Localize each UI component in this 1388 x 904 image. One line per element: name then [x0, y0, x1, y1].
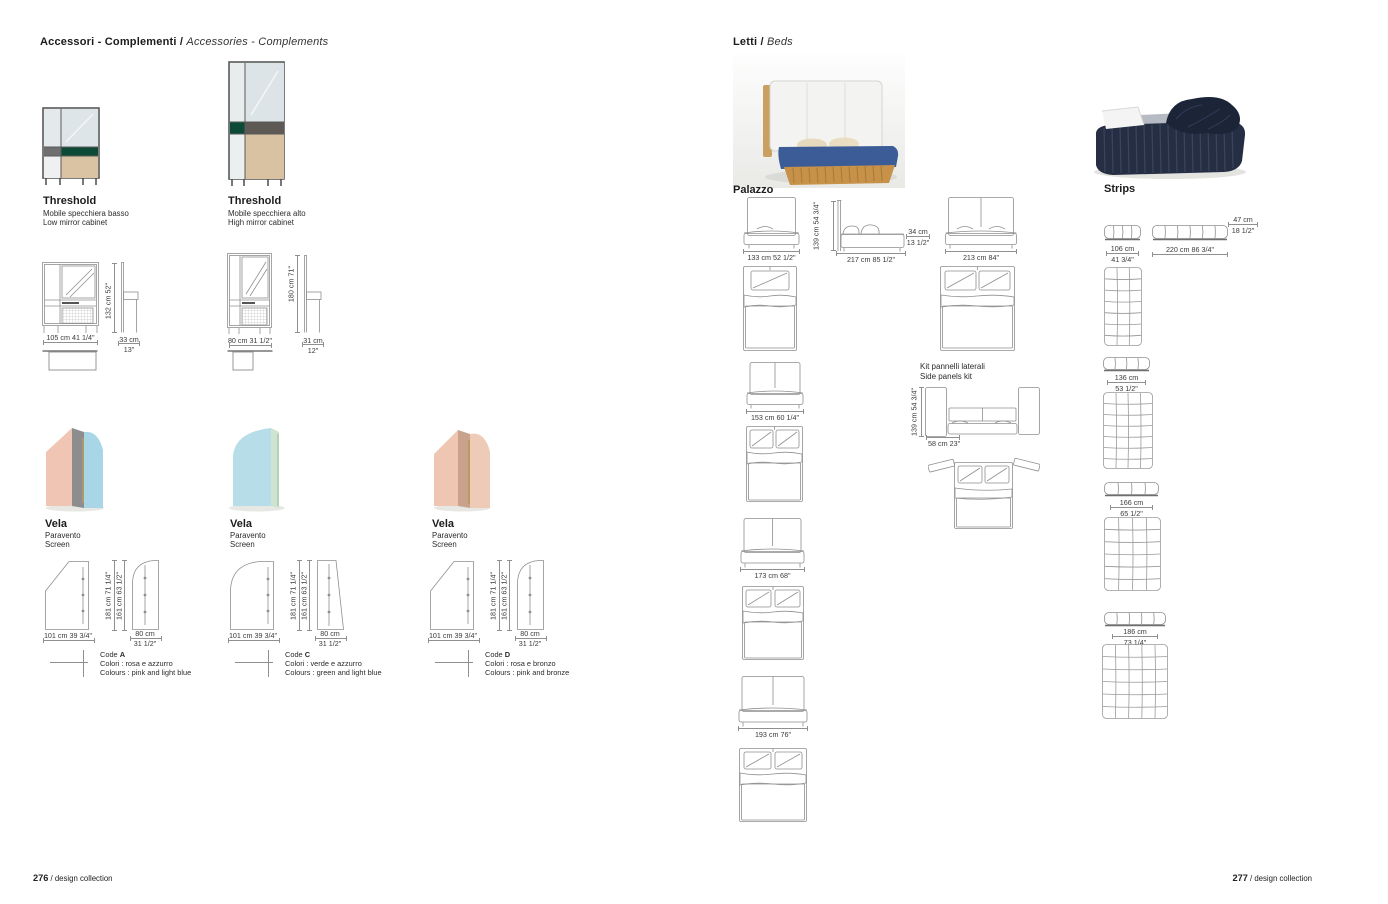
kit-title-en: Side panels kit [920, 372, 972, 381]
vela-c-photo [227, 418, 291, 513]
strips-plan-136 [1103, 392, 1153, 469]
vela-c-code: C [305, 650, 310, 659]
left-footer-label: / design collection [51, 874, 113, 883]
kit-width-dim: 58 cm 23" [928, 439, 960, 448]
palazzo-front-173 [740, 518, 805, 568]
vela-d-h1-dim: 181 cm 71 1/4" [489, 572, 498, 620]
palazzo-side-drawing [836, 200, 906, 252]
threshold-high-photo [228, 61, 285, 187]
vela-c-front-drawing [230, 561, 275, 630]
strips-front-186 [1104, 611, 1166, 628]
kit-front-drawing [925, 386, 1040, 438]
strips-w166-dimline [1110, 507, 1153, 508]
threshold-low-side-drawing [120, 262, 139, 333]
palazzo-top-193 [739, 748, 807, 822]
threshold-low-photo [42, 107, 100, 186]
threshold-high-top-drawing [227, 349, 273, 372]
vela-group-d: Vela Paravento Screen 101 cm 39 3/4" 181… [425, 410, 610, 690]
vela-d-code-line: Code D [485, 650, 569, 659]
vela-c-desc-en: Screen [230, 540, 255, 549]
strips-w106-dimline [1106, 253, 1139, 254]
vela-d-desc-it: Paravento [432, 531, 468, 540]
vela-c-width-dimline [228, 640, 280, 641]
vela-a-desc-it: Paravento [45, 531, 81, 540]
kit-title-it: Kit pannelli laterali [920, 362, 985, 371]
vela-d-front-drawing [430, 561, 475, 630]
palazzo-front-193 [738, 676, 808, 727]
left-page-footer: 276 / design collection [33, 873, 113, 883]
vela-a-h1-dim: 181 cm 71 1/4" [104, 572, 113, 620]
vela-d-w2-in: 31 1/2" [509, 639, 551, 648]
palazzo-217-dim: 217 cm 85 1/2" [836, 255, 906, 264]
threshold-high-width-dimline [229, 345, 272, 346]
vela-a-desc-en: Screen [45, 540, 70, 549]
strips-name: Strips [1104, 183, 1135, 195]
threshold-high-height-dimline [297, 255, 298, 333]
vela-d-desc-en: Screen [432, 540, 457, 549]
palazzo-name: Palazzo [733, 184, 773, 196]
palazzo-153-dim: 153 cm 60 1/4" [746, 413, 804, 422]
palazzo-133-dim: 133 cm 52 1/2" [743, 253, 800, 262]
palazzo-base-h-dimline [906, 236, 930, 237]
vela-a-w2-in: 31 1/2" [124, 639, 166, 648]
palazzo-213-dim: 213 cm 84" [945, 253, 1017, 262]
vela-d-colori: Colori : rosa e bronzo [485, 659, 569, 668]
vela-c-h2-dimline [309, 560, 310, 631]
vela-d-plan-vline [468, 650, 469, 677]
vela-d-h2-dim: 161 cm 63 1/2" [500, 572, 509, 620]
vela-d-width-dimline [428, 640, 480, 641]
vela-c-h2-dim: 161 cm 63 1/2" [300, 572, 309, 620]
vela-a-front-drawing [45, 561, 90, 630]
left-page-title: Accessori - Complementi / Accessories - … [40, 36, 328, 48]
right-page-footer: 277 / design collection [1130, 873, 1312, 883]
vela-c-colori: Colori : verde e azzurro [285, 659, 382, 668]
palazzo-213-dimline [945, 251, 1017, 252]
vela-c-plan-vline [268, 650, 269, 677]
threshold-low-top-drawing [42, 349, 98, 372]
vela-c-side-drawing [317, 560, 345, 630]
strips-w186-dimline [1112, 636, 1158, 637]
strips-l220-dim: 220 cm 86 3/4" [1152, 245, 1228, 254]
threshold-high-depth-in: 12" [301, 346, 325, 355]
strips-w106-in: 41 3/4" [1098, 255, 1147, 264]
strips-front-220 [1152, 223, 1228, 242]
left-title-italian: Accessori - Complementi / [40, 36, 183, 48]
palazzo-153-dimline [746, 411, 804, 412]
right-title-english: Beds [767, 36, 793, 48]
palazzo-193-dim: 193 cm 76" [738, 730, 808, 739]
strips-plan-106 [1104, 267, 1142, 346]
palazzo-top-133 [743, 266, 797, 351]
palazzo-193-dimline [738, 728, 808, 729]
palazzo-front-153 [746, 362, 804, 409]
threshold-high-height-dim: 180 cm 71" [287, 266, 296, 302]
strips-plan-166 [1104, 517, 1161, 591]
vela-d-code-block: Code D Colori : rosa e bronzo Colours : … [485, 650, 569, 678]
threshold-low-desc-en: Low mirror cabinet [43, 218, 107, 227]
palazzo-133-dimline [743, 251, 800, 252]
right-page-number: 277 [1233, 873, 1248, 883]
threshold-low-desc-it: Mobile specchiera basso [43, 209, 129, 218]
palazzo-173-dim: 173 cm 68" [740, 571, 805, 580]
strips-h47-in: 18 1/2" [1222, 226, 1264, 235]
right-title-italian: Letti / [733, 36, 764, 48]
palazzo-front-213 [945, 197, 1017, 249]
vela-a-h2-dim: 161 cm 63 1/2" [115, 572, 124, 620]
threshold-low-width-dimline [43, 342, 98, 343]
vela-a-code-line: Code A [100, 650, 191, 659]
vela-c-h1-dim: 181 cm 71 1/4" [289, 572, 298, 620]
palazzo-height-dimline [833, 201, 834, 251]
left-page-number: 276 [33, 873, 48, 883]
threshold-low-width-dim: 105 cm 41 1/4" [42, 333, 99, 342]
vela-d-code: D [505, 650, 510, 659]
threshold-low-height-dim: 132 cm 52" [104, 283, 113, 319]
strips-w166-cm: 166 cm [1104, 498, 1159, 507]
strips-front-166 [1104, 481, 1159, 498]
catalog-spread: Accessori - Complementi / Accessories - … [0, 0, 1388, 904]
vela-c-desc-it: Paravento [230, 531, 266, 540]
vela-a-h2-dimline [124, 560, 125, 631]
palazzo-photo [733, 55, 905, 188]
vela-a-width-dimline [43, 640, 95, 641]
vela-d-photo [430, 418, 494, 513]
vela-a-name: Vela [45, 518, 67, 530]
strips-photo [1078, 83, 1258, 184]
vela-c-name: Vela [230, 518, 252, 530]
strips-l220-dimline [1152, 254, 1228, 255]
vela-d-side-drawing [517, 560, 545, 630]
threshold-high-desc-en: High mirror cabinet [228, 218, 294, 227]
vela-c-colours: Colours : green and light blue [285, 668, 382, 677]
right-footer-label: / design collection [1250, 874, 1312, 883]
threshold-high-name: Threshold [228, 195, 281, 207]
palazzo-base-h-in: 13 1/2" [902, 238, 934, 247]
vela-a-code-block: Code A Colori : rosa e azzurro Colours :… [100, 650, 191, 678]
vela-a-side-drawing [132, 560, 160, 630]
threshold-high-side-drawing [303, 255, 323, 333]
strips-w136-dimline [1107, 382, 1146, 383]
vela-group-c: Vela Paravento Screen 101 cm 39 3/4" 181… [225, 410, 410, 690]
vela-d-name: Vela [432, 518, 454, 530]
palazzo-top-153 [746, 426, 803, 502]
kit-height-dim: 139 cm 54 3/4" [910, 388, 919, 436]
palazzo-173-dimline [740, 569, 805, 570]
threshold-high-front-drawing [227, 253, 272, 335]
vela-a-colours: Colours : pink and light blue [100, 668, 191, 677]
threshold-low-depth-in: 13" [117, 345, 141, 354]
palazzo-front-133 [743, 197, 800, 249]
kit-height-dimline [921, 387, 922, 437]
palazzo-217-dimline [836, 253, 906, 254]
strips-front-106 [1104, 223, 1141, 242]
vela-a-colori: Colori : rosa e azzurro [100, 659, 191, 668]
vela-a-photo [42, 418, 106, 513]
left-title-english: Accessories - Complements [186, 36, 328, 48]
vela-c-w2-in: 31 1/2" [309, 639, 351, 648]
vela-d-colours: Colours : pink and bronze [485, 668, 569, 677]
strips-front-136 [1103, 356, 1150, 373]
vela-d-h2-dimline [509, 560, 510, 631]
strips-plan-186 [1102, 644, 1168, 719]
kit-top-drawing [928, 456, 1040, 532]
palazzo-top-173 [742, 586, 804, 660]
vela-a-plan-vline [83, 650, 84, 677]
palazzo-top-213 [940, 266, 1015, 351]
threshold-low-height-dimline [114, 263, 115, 333]
right-page-title: Letti / Beds [733, 36, 793, 48]
threshold-low-front-drawing [42, 262, 99, 334]
threshold-low-name: Threshold [43, 195, 96, 207]
palazzo-height-dim: 139 cm 54 3/4" [812, 202, 821, 250]
kit-width-dimline [926, 437, 960, 438]
vela-c-code-block: Code C Colori : verde e azzurro Colours … [285, 650, 382, 678]
threshold-high-desc-it: Mobile specchiera alto [228, 209, 306, 218]
strips-h47-dimline [1228, 224, 1258, 225]
vela-a-code: A [120, 650, 125, 659]
vela-c-code-line: Code C [285, 650, 382, 659]
vela-group-a: Vela Paravento Screen 101 cm 39 3/4" 181… [40, 410, 225, 690]
